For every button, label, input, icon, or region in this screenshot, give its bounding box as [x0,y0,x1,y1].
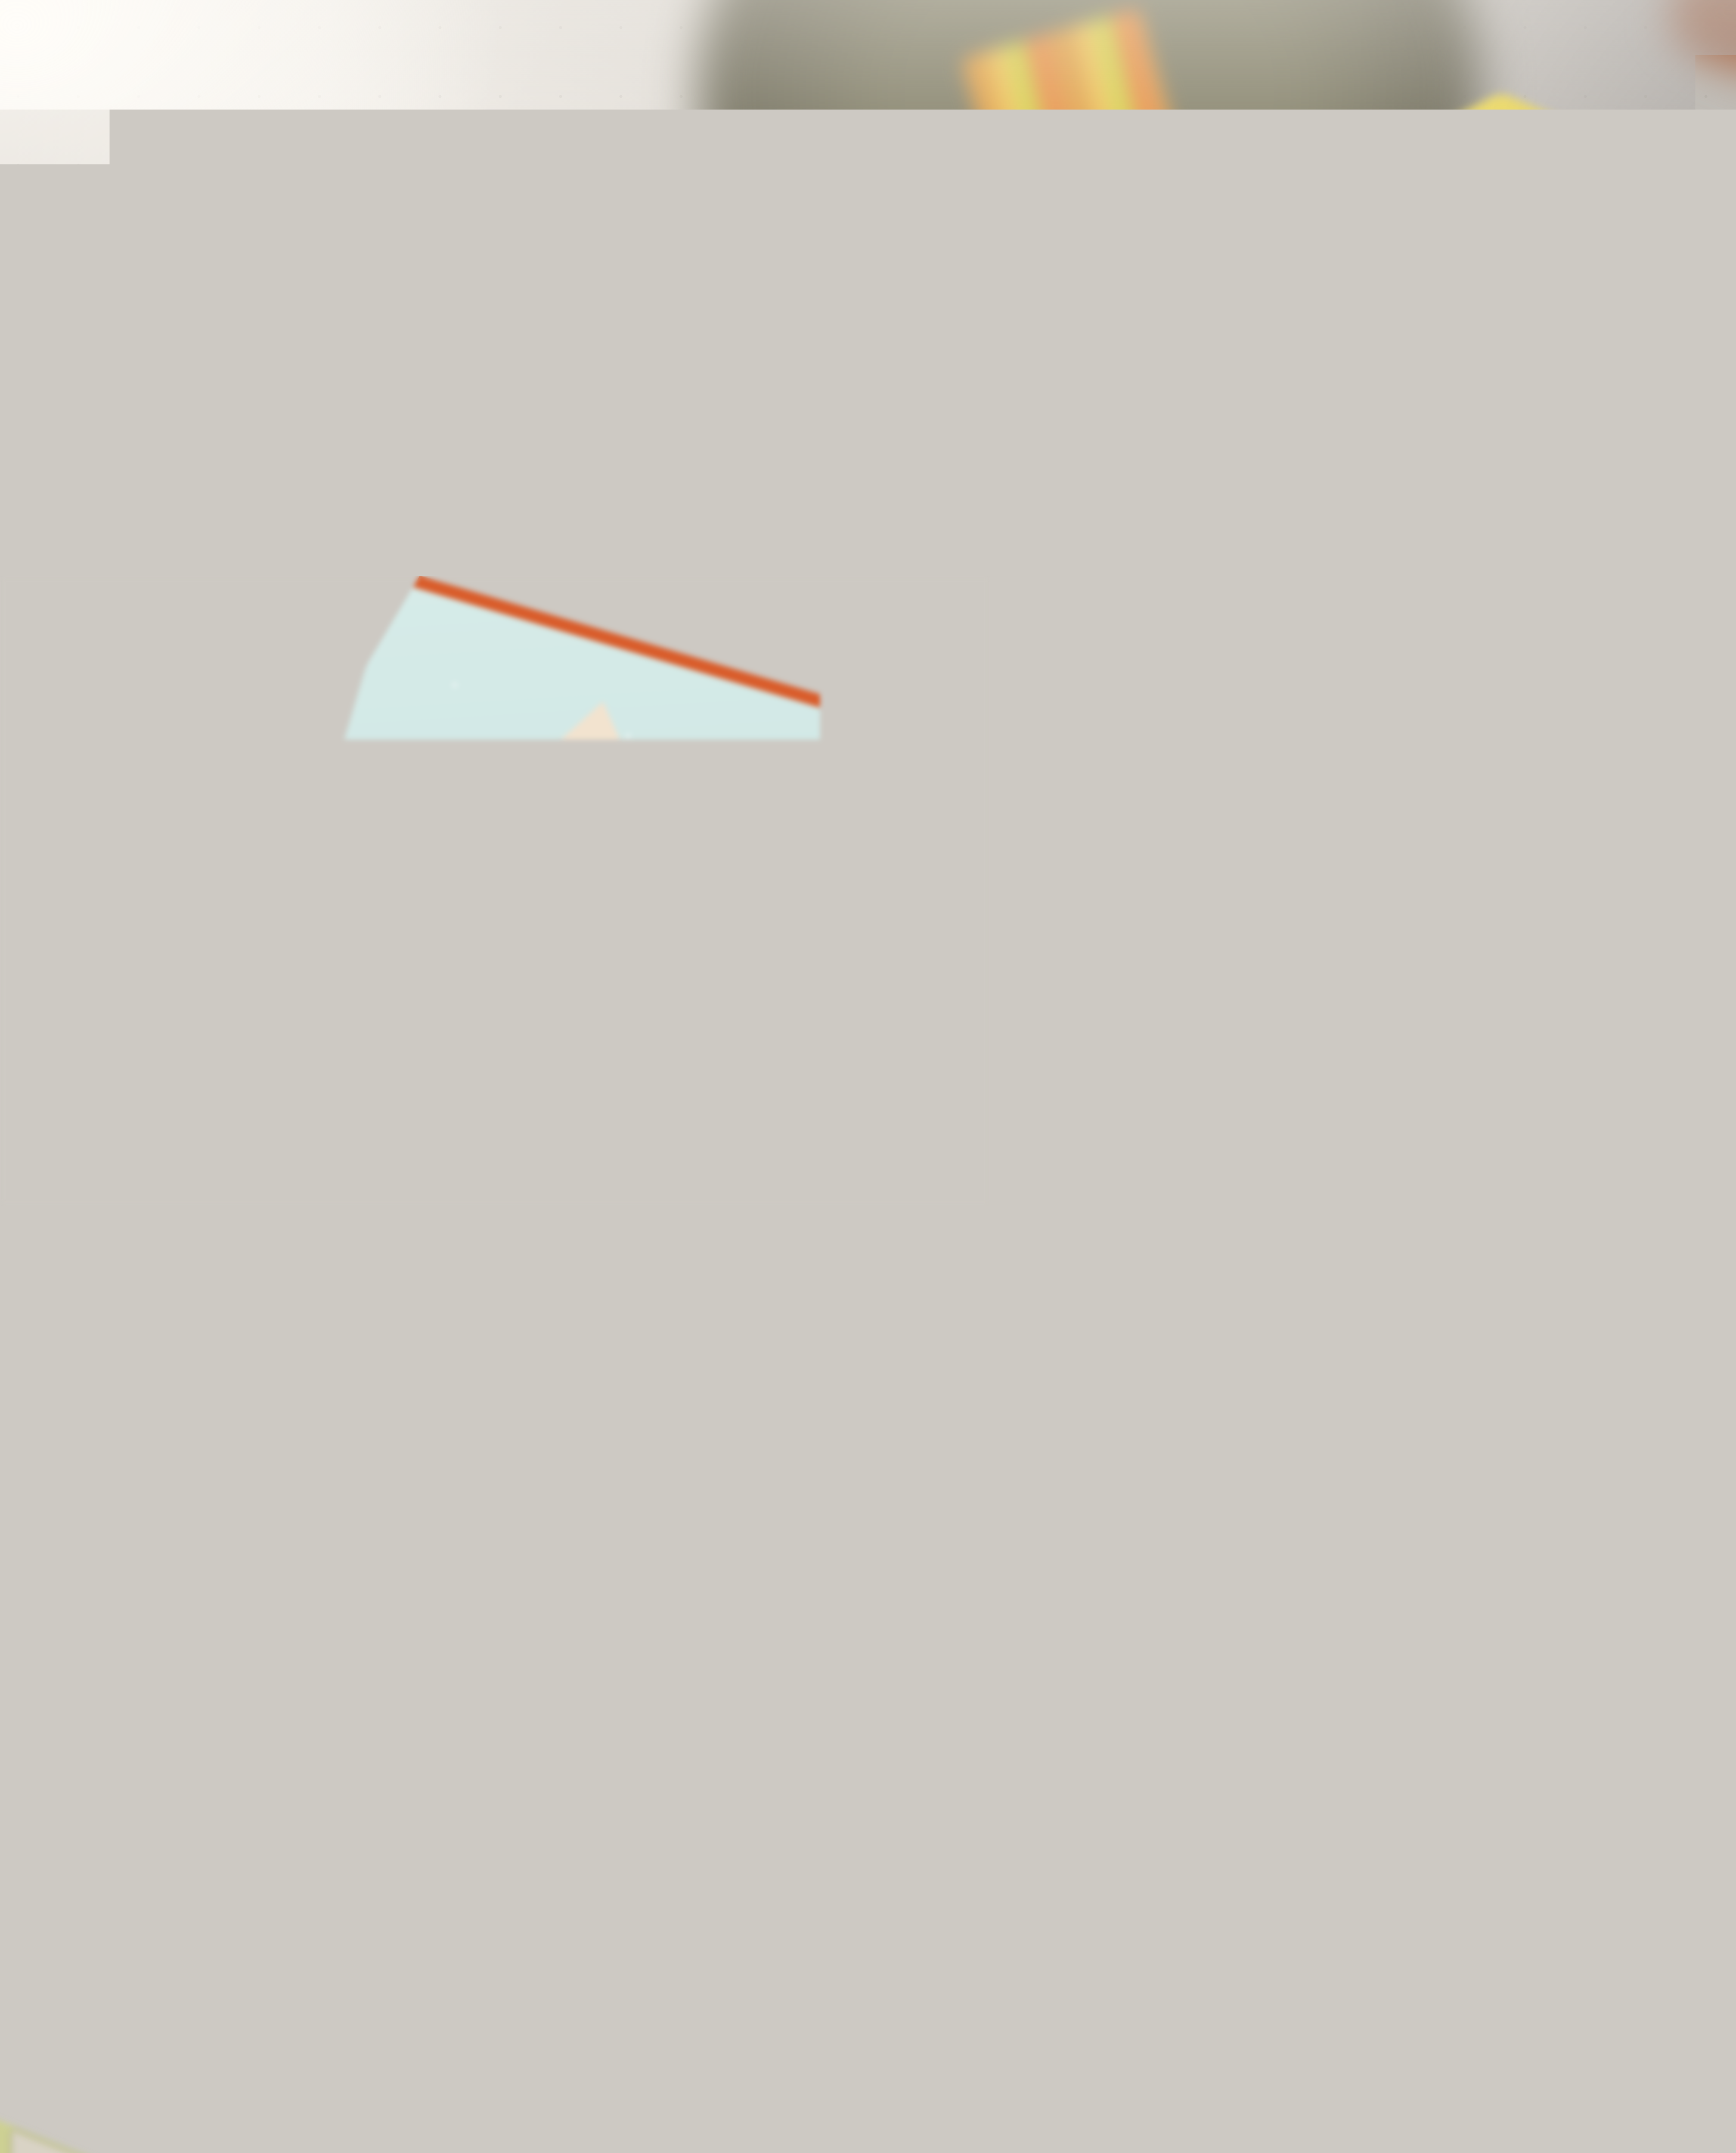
dresser [664,1323,756,1458]
drawer-handle [700,1380,719,1390]
text-fragment: ord. [0,1323,36,1389]
pendant-stem [888,1362,899,1419]
window [431,1090,579,1207]
photo-scene: One sent ord. high priest—the One you an… [0,0,1736,2153]
blurred-line [245,1494,409,1707]
tower-window [1144,1121,1220,1249]
drawer-handle [706,1346,725,1356]
cube [1623,609,1736,819]
cube-hole [1445,189,1522,262]
armchair-room [1019,1393,1172,1577]
pendant-stem [853,1351,862,1393]
arch-window [834,1200,925,1334]
bed [581,1339,676,1437]
cube-hole [1681,853,1736,948]
armchair [1046,1461,1143,1557]
cat [881,1427,917,1461]
pendant-stem [818,1340,825,1367]
cube-hole [1564,243,1642,316]
cube-hole [1676,673,1736,769]
cube-hole [741,394,821,467]
cube-hole [864,441,943,514]
pendant-lamp [807,1363,833,1391]
blurred-line [223,1395,449,1691]
tower-window [1070,1254,1177,1404]
cube-hole [619,347,698,420]
window [634,1153,760,1260]
cube-hole [1672,492,1736,587]
arch-window [912,1223,1003,1358]
cube-hole [1684,297,1736,369]
pendant-lamp [841,1389,867,1417]
shower [527,941,624,1084]
tower-window [1082,1103,1158,1231]
